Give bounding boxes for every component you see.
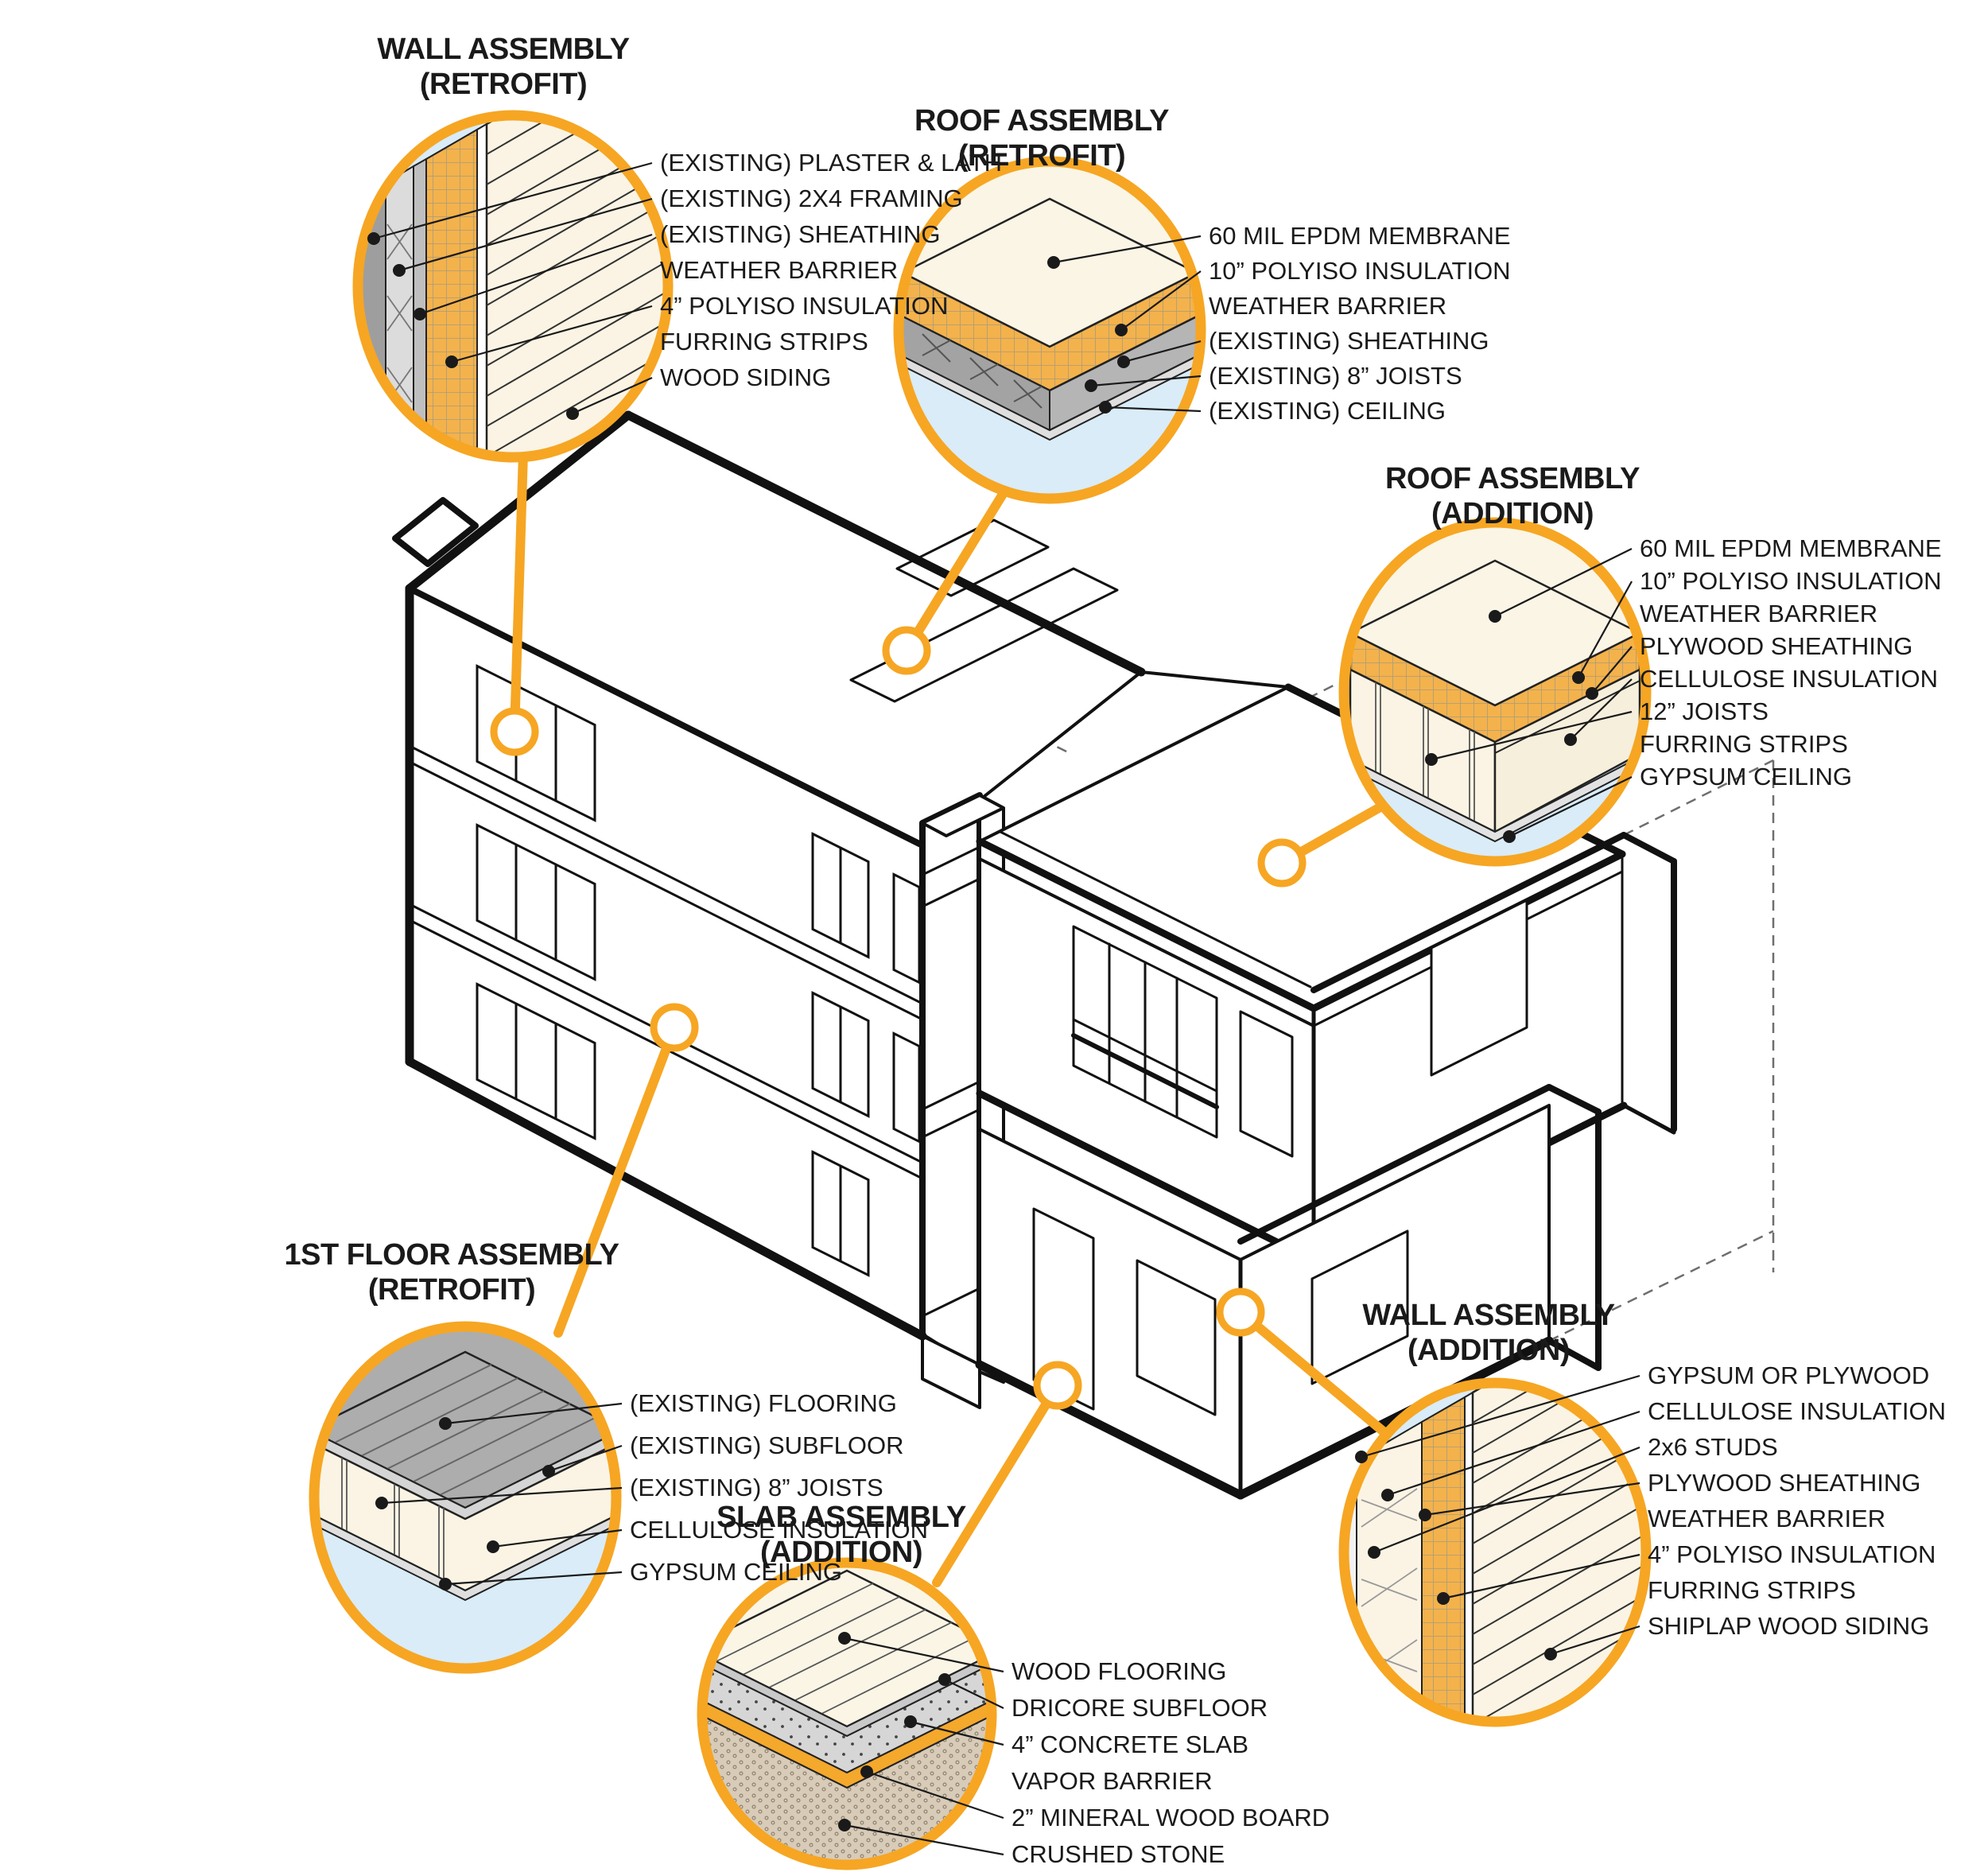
label-anchor-dot: [938, 1673, 951, 1686]
assembly-label: GYPSUM CEILING: [1640, 762, 1852, 792]
label-leader-line: [1443, 1555, 1640, 1598]
label-anchor-dot: [542, 1465, 555, 1478]
label-anchor-dot: [1355, 1451, 1368, 1463]
title-line1: ROOF ASSEMBLY: [819, 103, 1264, 138]
label-anchor-dot: [1047, 256, 1060, 269]
assembly-label: PLYWOOD SHEATHING: [1640, 631, 1912, 662]
label-anchor-dot: [1564, 733, 1577, 746]
label-leader-line: [549, 1446, 622, 1471]
assembly-label: PLYWOOD SHEATHING: [1648, 1468, 1920, 1498]
label-leader-line: [1578, 581, 1632, 678]
label-leader-line: [1431, 712, 1632, 759]
assembly-label: (EXISTING) SHEATHING: [660, 219, 941, 250]
label-anchor-dot: [487, 1540, 499, 1553]
title-line2: (ADDITION): [1290, 496, 1735, 531]
assembly-label: WEATHER BARRIER: [1209, 291, 1446, 321]
label-leader-line: [1592, 647, 1632, 693]
assembly-label: 12” JOISTS: [1640, 697, 1769, 727]
label-anchor-dot: [904, 1715, 917, 1728]
label-anchor-dot: [1381, 1489, 1394, 1501]
assembly-label: CRUSHED STONE: [1011, 1839, 1225, 1870]
assembly-label: CELLULOSE INSULATION: [630, 1515, 928, 1545]
label-anchor-dot: [393, 264, 406, 277]
assembly-label: (EXISTING) 2X4 FRAMING: [660, 184, 963, 214]
label-leader-line: [1361, 1376, 1640, 1457]
assembly-label: CELLULOSE INSULATION: [1648, 1396, 1946, 1427]
label-leader-line: [945, 1680, 1004, 1708]
label-leader-line: [493, 1530, 622, 1547]
label-anchor-dot: [1115, 324, 1128, 336]
label-anchor-dot: [838, 1819, 851, 1831]
label-anchor-dot: [439, 1578, 452, 1591]
title-line1: WALL ASSEMBLY: [1266, 1298, 1711, 1333]
assembly-label: GYPSUM CEILING: [630, 1557, 842, 1587]
label-leader-line: [911, 1722, 1004, 1745]
label-leader-line: [573, 378, 652, 414]
label-anchor-dot: [566, 407, 579, 420]
assembly-label: 4” CONCRETE SLAB: [1011, 1730, 1248, 1760]
assembly-label: WOOD SIDING: [660, 363, 831, 393]
assembly-label: VAPOR BARRIER: [1011, 1766, 1213, 1796]
label-anchor-dot: [1085, 379, 1097, 392]
label-leader-line: [399, 199, 652, 270]
label-leader-line: [382, 1488, 622, 1503]
title-line2: (RETROFIT): [229, 1272, 674, 1307]
assembly-label: WEATHER BARRIER: [660, 255, 898, 285]
label-anchor-dot: [838, 1632, 851, 1645]
label-anchor-dot: [1117, 355, 1130, 368]
label-leader-line: [1091, 376, 1201, 386]
label-leader-line: [1121, 271, 1201, 330]
assembly-label: (EXISTING) 8” JOISTS: [1209, 361, 1462, 391]
title-line1: ROOF ASSEMBLY: [1290, 461, 1735, 496]
label-leader-line: [1054, 236, 1201, 262]
callout-title-wall-retrofit: WALL ASSEMBLY (RETROFIT): [281, 32, 726, 102]
label-anchor-dot: [414, 308, 426, 320]
label-anchor-dot: [1503, 830, 1516, 843]
label-anchor-dot: [1489, 610, 1501, 623]
diagram-canvas: WALL ASSEMBLY (RETROFIT) ROOF ASSEMBLY (…: [0, 0, 1988, 1876]
label-anchor-dot: [445, 355, 458, 368]
assembly-label: (EXISTING) SHEATHING: [1209, 326, 1489, 356]
label-anchor-dot: [1099, 401, 1112, 414]
label-leader-line: [445, 1572, 622, 1584]
callout-title-roof-addition: ROOF ASSEMBLY (ADDITION): [1290, 461, 1735, 531]
label-leader-line: [420, 235, 652, 314]
label-leader-line: [445, 1404, 622, 1424]
label-anchor-dot: [860, 1765, 873, 1778]
label-anchor-dot: [1544, 1648, 1557, 1660]
assembly-label: SHIPLAP WOOD SIDING: [1648, 1611, 1929, 1641]
title-line1: 1ST FLOOR ASSEMBLY: [229, 1237, 674, 1272]
label-leader-line: [845, 1825, 1004, 1855]
title-line2: (RETROFIT): [281, 67, 726, 102]
callout-title-wall-addition: WALL ASSEMBLY (ADDITION): [1266, 1298, 1711, 1368]
assembly-label: 2” MINERAL WOOD BOARD: [1011, 1803, 1330, 1833]
assembly-label: (EXISTING) FLOORING: [630, 1389, 897, 1419]
label-anchor-dot: [1368, 1546, 1380, 1559]
title-line2: (ADDITION): [1266, 1333, 1711, 1368]
assembly-label: FURRING STRIPS: [660, 327, 868, 357]
assembly-label: WEATHER BARRIER: [1648, 1504, 1885, 1534]
label-leader-line: [1509, 777, 1632, 837]
label-leader-line: [374, 163, 652, 239]
label-leader-line: [452, 306, 652, 362]
label-leader-line: [1495, 549, 1632, 616]
label-leader-line: [1571, 679, 1632, 740]
label-anchor-dot: [367, 232, 380, 245]
title-line1: WALL ASSEMBLY: [281, 32, 726, 67]
label-anchor-dot: [375, 1497, 388, 1509]
label-anchor-dot: [1586, 687, 1598, 700]
label-leader-line: [1105, 407, 1201, 411]
label-anchor-dot: [439, 1417, 452, 1430]
label-leader-line: [1374, 1447, 1640, 1552]
assembly-label: (EXISTING) PLASTER & LATH: [660, 148, 1002, 178]
assembly-label: (EXISTING) 8” JOISTS: [630, 1473, 883, 1503]
assembly-label: 10” POLYISO INSULATION: [1209, 256, 1511, 286]
assembly-label: FURRING STRIPS: [1648, 1575, 1856, 1606]
assembly-label: 4” POLYISO INSULATION: [660, 291, 948, 321]
label-anchor-dot: [1437, 1592, 1450, 1605]
label-anchor-dot: [1419, 1509, 1431, 1521]
assembly-label: WEATHER BARRIER: [1640, 599, 1877, 629]
callout-title-first-floor-retrofit: 1ST FLOOR ASSEMBLY (RETROFIT): [229, 1237, 674, 1307]
assembly-label: (EXISTING) CEILING: [1209, 396, 1446, 426]
label-anchor-dot: [1425, 753, 1438, 766]
assembly-label: WOOD FLOORING: [1011, 1657, 1226, 1687]
label-leader-line: [1425, 1483, 1640, 1515]
label-leader-line: [867, 1772, 1004, 1818]
assembly-label: 60 MIL EPDM MEMBRANE: [1640, 534, 1942, 564]
label-leader-line: [1551, 1626, 1640, 1654]
assembly-label: DRICORE SUBFLOOR: [1011, 1693, 1268, 1723]
assembly-label: GYPSUM OR PLYWOOD: [1648, 1361, 1929, 1391]
assembly-label: 60 MIL EPDM MEMBRANE: [1209, 221, 1511, 251]
assembly-label: 2x6 STUDS: [1648, 1432, 1778, 1462]
assembly-label: 4” POLYISO INSULATION: [1648, 1540, 1936, 1570]
label-leader-line: [1124, 341, 1201, 362]
assembly-label: CELLULOSE INSULATION: [1640, 664, 1938, 694]
label-anchor-dot: [1572, 671, 1585, 684]
label-leader-line: [845, 1638, 1004, 1672]
assembly-label: FURRING STRIPS: [1640, 729, 1848, 759]
label-leader-line: [1388, 1412, 1640, 1495]
assembly-label: (EXISTING) SUBFLOOR: [630, 1431, 903, 1461]
assembly-label: 10” POLYISO INSULATION: [1640, 566, 1942, 596]
